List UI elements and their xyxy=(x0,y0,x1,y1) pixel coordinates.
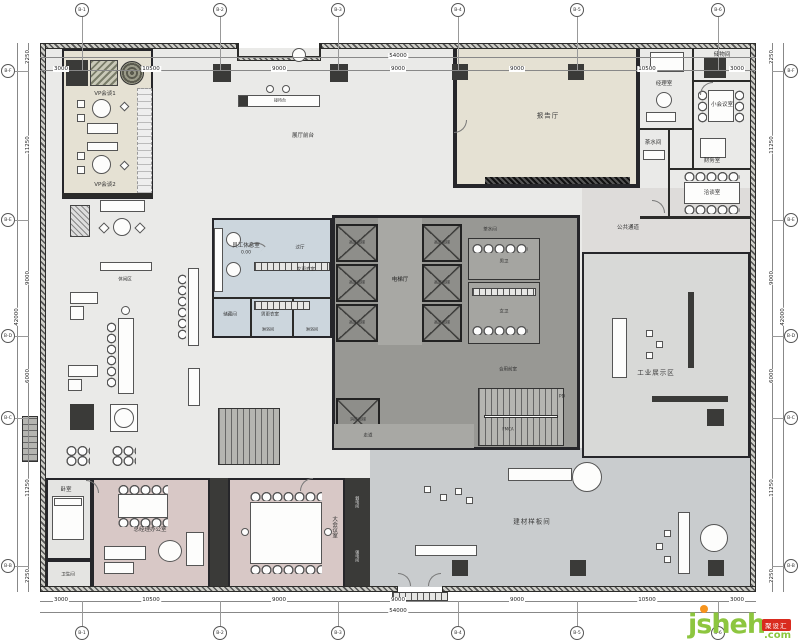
chair xyxy=(241,528,249,536)
grid-bubble: B-E xyxy=(784,213,798,227)
conference-table xyxy=(250,502,322,564)
pillow xyxy=(54,498,82,506)
grid-stem xyxy=(772,336,784,337)
office-desk xyxy=(68,365,98,377)
dining-table xyxy=(118,494,168,518)
room-label: 财务室 xyxy=(704,158,721,164)
dim-seg: 10500 xyxy=(637,66,657,72)
room-label: 女更衣室 xyxy=(297,267,315,272)
dim-seg: 2250 xyxy=(25,569,31,583)
grid-stem xyxy=(458,601,459,626)
stairs xyxy=(218,408,280,465)
dim-seg: 10500 xyxy=(141,66,161,72)
storage-cabinet xyxy=(704,58,726,78)
shaft-label: 消防电梯 xyxy=(350,418,366,423)
lounge-chairs xyxy=(66,456,90,466)
grid-stem xyxy=(338,601,339,626)
rug xyxy=(158,540,182,562)
dim-seg: 2250 xyxy=(25,50,31,64)
area-label: 建材样板间 xyxy=(513,518,551,525)
pantry-counter xyxy=(643,150,665,160)
room-label: 弱电间 xyxy=(355,496,360,508)
code-label: PD xyxy=(559,394,565,399)
partition xyxy=(250,297,252,338)
console-table xyxy=(100,262,152,271)
dim-line-seg-left xyxy=(28,43,29,592)
room-label: VP会谈2 xyxy=(94,182,116,188)
chairs xyxy=(107,322,116,388)
display-wall xyxy=(652,396,728,402)
suite-divider xyxy=(62,193,153,198)
shaft-label: 高区电梯 xyxy=(434,281,450,286)
dim-total-left: 42000 xyxy=(14,308,20,326)
chairs xyxy=(250,492,322,501)
grid-stem xyxy=(718,17,719,70)
room-label: 洽谈室 xyxy=(704,190,721,196)
stool xyxy=(266,85,274,93)
exterior-wall-right xyxy=(750,43,756,592)
chairs xyxy=(118,485,168,494)
room-label: VP会谈1 xyxy=(94,91,116,97)
room-label: 茶水间 xyxy=(645,140,662,146)
dim-total-right: 42000 xyxy=(780,308,786,326)
room-label: 小会议室 xyxy=(711,102,733,108)
room-label: 淋浴间 xyxy=(262,328,274,333)
grid-stem xyxy=(338,17,339,70)
grid-stem xyxy=(15,336,29,337)
industry-zone xyxy=(582,252,750,458)
grid-bubble: B-5 xyxy=(570,3,584,17)
round-table xyxy=(114,408,134,428)
chairs xyxy=(250,565,322,574)
area-label: 休闲区 xyxy=(118,277,132,282)
dim-seg: 3000 xyxy=(53,597,69,603)
grid-bubble: B-C xyxy=(784,411,798,425)
room-label: 淋浴间 xyxy=(306,328,318,333)
display-counter xyxy=(508,468,572,481)
credenza xyxy=(70,205,90,237)
grid-bubble: B-D xyxy=(1,329,15,343)
dim-seg: 3000 xyxy=(53,66,69,72)
armchair xyxy=(77,100,85,108)
watermark-tld: .com xyxy=(764,630,791,641)
grid-bubble: B-1 xyxy=(75,626,89,640)
grid-stem xyxy=(458,17,459,70)
dim-total-top: 54000 xyxy=(388,53,408,59)
grid-bubble: B-2 xyxy=(213,3,227,17)
dim-seg: 9000 xyxy=(509,597,525,603)
shaft-label: 高区电梯 xyxy=(434,321,450,326)
grid-stem xyxy=(577,17,578,70)
chairs xyxy=(684,205,740,214)
column xyxy=(708,560,724,576)
grid-bubble: B-6 xyxy=(711,3,725,17)
exterior-wall-bottom xyxy=(442,586,756,592)
shaft-label: 高区电梯 xyxy=(349,321,365,326)
shaft-label: 高区电梯 xyxy=(434,241,450,246)
dim-seg: 9000 xyxy=(769,271,775,285)
round-table xyxy=(700,524,728,552)
dim-seg: 10500 xyxy=(141,597,161,603)
office-desk xyxy=(70,292,98,304)
room-label: 总经理办公室 xyxy=(133,527,166,533)
grid-stem xyxy=(82,601,83,626)
lounge-chairs xyxy=(112,456,136,466)
office-desk xyxy=(68,379,82,391)
exterior-wall-top xyxy=(321,43,756,49)
level-mark: 0.00 xyxy=(241,250,251,255)
dim-total-bottom: 54000 xyxy=(388,608,408,614)
exhibit-stand xyxy=(656,341,663,348)
exhibit-stand xyxy=(656,543,663,550)
stair-rail xyxy=(484,415,558,418)
room-label: 大会议室 xyxy=(331,516,337,538)
watermark: jsheh 聚设汇 .com xyxy=(686,602,798,642)
partition xyxy=(692,80,754,82)
chairs xyxy=(118,518,168,527)
cabinet xyxy=(70,404,94,430)
dim-seg: 9000 xyxy=(25,271,31,285)
grid-stem xyxy=(15,220,29,221)
display-table xyxy=(612,318,627,378)
chairs xyxy=(735,90,744,123)
dim-seg: 11250 xyxy=(25,136,31,154)
dim-seg: 9000 xyxy=(390,597,406,603)
public-corridor xyxy=(640,218,751,252)
grid-stem xyxy=(772,220,784,221)
column xyxy=(568,64,584,80)
office-desk xyxy=(104,546,146,560)
grid-bubble: B-F xyxy=(784,64,798,78)
partition xyxy=(692,130,694,168)
model-zone xyxy=(582,458,750,587)
room-label: 男卫 xyxy=(500,259,509,264)
grid-stem xyxy=(772,418,784,419)
lounge-chairs xyxy=(112,446,136,456)
grid-bubble: B-C xyxy=(1,411,15,425)
grid-bubble: B-5 xyxy=(570,626,584,640)
column xyxy=(66,60,88,86)
lounge-chairs xyxy=(66,446,90,456)
dim-seg: 11250 xyxy=(25,479,31,497)
partition xyxy=(640,128,694,130)
room-label: 男更衣室 xyxy=(261,312,279,317)
partition xyxy=(640,216,754,219)
chairs xyxy=(684,172,740,181)
room-label: 卧室 xyxy=(60,487,71,493)
service-band xyxy=(345,478,370,588)
curtain xyxy=(137,88,152,194)
grid-stem xyxy=(82,17,83,70)
dim-seg: 9000 xyxy=(390,66,406,72)
desk-end xyxy=(239,96,248,106)
sofa xyxy=(646,112,676,122)
dim-line-seg-right xyxy=(772,43,773,592)
room-label: 合用前室 xyxy=(499,367,517,372)
room-label: 员工休息室 xyxy=(232,243,260,249)
grid-bubble: B-B xyxy=(1,559,15,573)
exhibit-stand xyxy=(466,497,473,504)
grid-bubble: B-D xyxy=(784,329,798,343)
exhibit-stand xyxy=(646,352,653,359)
column xyxy=(707,409,724,426)
round-table xyxy=(92,99,111,118)
grid-stem xyxy=(772,566,784,567)
wc-stalls xyxy=(472,288,536,296)
corridor-walkway xyxy=(334,424,474,448)
grid-bubble: B-E xyxy=(1,213,15,227)
grid-bubble: B-3 xyxy=(331,3,345,17)
wc-fixtures xyxy=(472,244,528,253)
room-label: 强电间 xyxy=(355,550,360,562)
column xyxy=(452,560,468,576)
partition xyxy=(668,130,670,218)
dim-seg: 11250 xyxy=(769,479,775,497)
sofa xyxy=(186,532,204,566)
floor-plan: VP会谈1 VP会谈2 接待台 展厅前台 报告厅 经理室 储物间 小会议室 茶水… xyxy=(0,0,800,643)
room-label: 茶水间 xyxy=(483,227,497,232)
room-label: 电梯厅 xyxy=(392,277,409,283)
grid-bubble: B-2 xyxy=(213,626,227,640)
code-label: FMCA xyxy=(502,428,513,433)
round-table xyxy=(572,462,602,492)
office-desk xyxy=(700,138,726,158)
exterior-wall-bottom xyxy=(40,586,398,592)
stools xyxy=(178,274,186,340)
column xyxy=(330,64,348,82)
sofa xyxy=(87,123,118,134)
room-label: 过厅 xyxy=(296,245,305,250)
exhibit-stand xyxy=(440,494,447,501)
round-table xyxy=(92,155,111,174)
armchair xyxy=(77,166,85,174)
armchair xyxy=(77,114,85,122)
area-label: 工业展示区 xyxy=(637,369,675,376)
bench xyxy=(188,368,200,406)
room-label: 报告厅 xyxy=(537,112,560,119)
chair xyxy=(121,306,130,315)
column xyxy=(570,560,586,576)
grid-stem xyxy=(15,418,29,419)
exterior-wall-top xyxy=(40,43,237,49)
round-table xyxy=(226,262,241,277)
grid-bubble: B-F xyxy=(1,64,15,78)
grid-stem xyxy=(772,71,784,72)
sofa xyxy=(87,142,118,151)
grid-stem xyxy=(15,71,29,72)
partition xyxy=(212,297,332,299)
planter xyxy=(90,60,118,86)
round-table xyxy=(113,218,131,236)
partition xyxy=(668,168,754,170)
grid-bubble: B-4 xyxy=(451,3,465,17)
grid-stem xyxy=(220,601,221,626)
bench xyxy=(188,268,199,346)
room-label: 接待台 xyxy=(274,99,286,104)
room-label: 卫生间 xyxy=(61,572,75,577)
column xyxy=(213,64,231,82)
lockers xyxy=(254,262,330,271)
dim-seg: 2250 xyxy=(769,569,775,583)
lockers xyxy=(254,301,310,310)
office-desk xyxy=(70,306,84,320)
revolving-door xyxy=(292,48,306,62)
room-label: 储藏间 xyxy=(223,312,237,317)
room-label: 女卫 xyxy=(500,309,509,314)
shaft-label: 高区电梯 xyxy=(349,241,365,246)
planter-round xyxy=(120,61,144,85)
grid-bubble: B-B xyxy=(784,559,798,573)
grid-stem xyxy=(15,566,29,567)
area-label: 展厅前台 xyxy=(292,133,314,139)
dim-seg: 9000 xyxy=(509,66,525,72)
exterior-stair xyxy=(22,416,38,462)
dim-seg: 11250 xyxy=(769,136,775,154)
office-desk xyxy=(104,562,134,574)
dim-seg: 3000 xyxy=(729,66,745,72)
display-counter xyxy=(415,545,477,556)
grid-stem xyxy=(220,17,221,70)
exhibit-stand xyxy=(424,486,431,493)
dim-seg: 6000 xyxy=(25,369,31,383)
dim-seg: 2250 xyxy=(769,50,775,64)
column xyxy=(452,64,468,80)
wc-fixtures xyxy=(472,326,528,335)
long-table xyxy=(118,318,134,394)
sofa xyxy=(214,228,223,292)
projection-screen xyxy=(485,177,630,184)
corridor-label: 公共通道 xyxy=(617,225,639,231)
elevator-shaft-band xyxy=(210,478,228,588)
dim-seg: 9000 xyxy=(271,66,287,72)
dim-seg: 10500 xyxy=(637,597,657,603)
shaft-label: 高区电梯 xyxy=(349,281,365,286)
grid-bubble: B-1 xyxy=(75,3,89,17)
exhibit-stand xyxy=(646,330,653,337)
round-table xyxy=(656,92,672,108)
dim-seg: 9000 xyxy=(271,597,287,603)
sofa xyxy=(100,200,145,212)
room-label: 走道 xyxy=(364,433,373,438)
display-wall xyxy=(688,292,694,368)
dim-seg: 6000 xyxy=(769,369,775,383)
stool xyxy=(282,85,290,93)
armchair xyxy=(77,152,85,160)
grid-bubble: B-3 xyxy=(331,626,345,640)
grid-stem xyxy=(577,601,578,626)
exhibit-stand xyxy=(664,556,671,563)
exterior-wall-left xyxy=(40,43,46,592)
room-label: 经理室 xyxy=(656,81,673,87)
exhibit-stand xyxy=(664,530,671,537)
display-counter xyxy=(678,512,690,574)
grid-bubble: B-4 xyxy=(451,626,465,640)
exhibit-stand xyxy=(455,488,462,495)
watermark-brand: jsheh xyxy=(688,609,765,640)
